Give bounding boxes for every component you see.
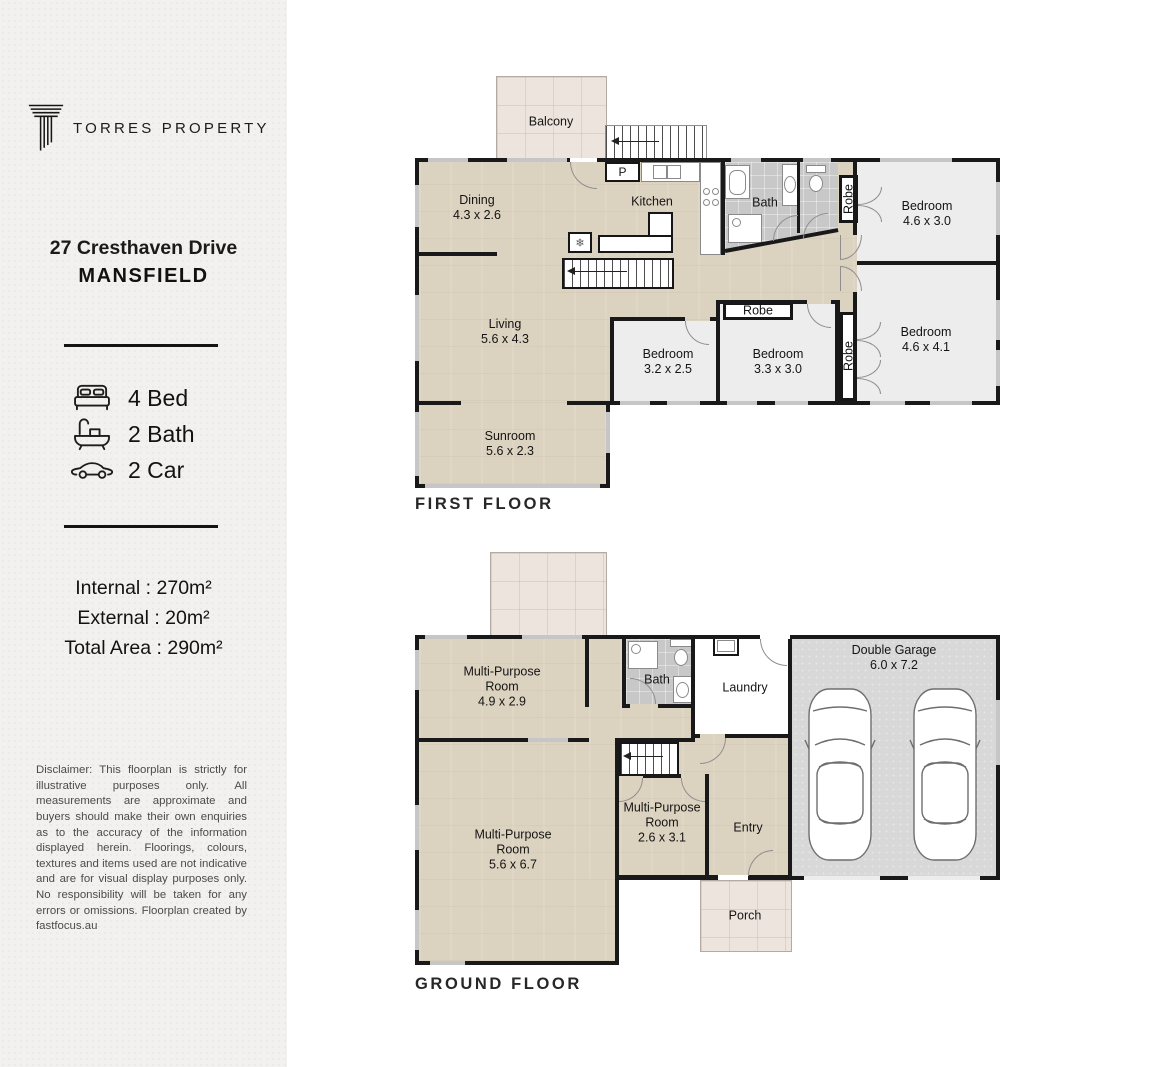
room-name: Kitchen (631, 195, 673, 210)
wall (568, 738, 589, 742)
room-name: Dining (453, 193, 501, 208)
window (430, 961, 465, 965)
wall (622, 639, 626, 708)
staircase (605, 125, 707, 160)
room-name: Bedroom (902, 199, 953, 214)
kitchen-sink (653, 165, 667, 179)
stairs-direction-line (619, 141, 659, 143)
room-name: Double Garage (852, 643, 937, 658)
wall (585, 639, 589, 707)
torres-logo-icon (28, 103, 64, 153)
room-label-multipurpose1: Multi-Purpose Room 4.9 x 2.9 (449, 665, 555, 710)
window (803, 158, 831, 162)
wall (643, 774, 681, 778)
bath-icon (70, 417, 114, 451)
room-dims: 3.2 x 2.5 (643, 362, 694, 377)
room-label-porch: Porch (729, 909, 762, 924)
window (996, 700, 1000, 765)
basin (676, 682, 689, 698)
window (428, 158, 468, 162)
room-name: Sunroom (485, 429, 536, 444)
wall (658, 704, 695, 708)
room-label-bath: Bath (644, 673, 670, 688)
wall (691, 639, 695, 738)
room-dims: 5.6 x 6.7 (460, 858, 566, 873)
car-top-view (909, 683, 981, 866)
room-name: Bedroom (901, 325, 952, 340)
window (415, 650, 419, 690)
room-dims: 5.6 x 4.3 (481, 332, 529, 347)
wall (725, 734, 792, 738)
room-name: Bath (752, 196, 778, 211)
island-bench (648, 212, 673, 237)
window (415, 805, 419, 850)
window (415, 185, 419, 227)
room-label-laundry: Laundry (722, 681, 767, 696)
room-label-bath: Bath (752, 196, 778, 211)
garage-door-opening (804, 876, 880, 880)
room-name: Laundry (722, 681, 767, 696)
car-top-view (804, 683, 876, 866)
bath-count: 2 Bath (128, 421, 195, 448)
window (996, 182, 1000, 235)
bathtub-inner (729, 170, 746, 195)
window (731, 158, 761, 162)
room-label-robe: Robe (743, 304, 773, 319)
window (522, 635, 582, 639)
room-name: Robe (743, 304, 773, 319)
shower-head (631, 644, 641, 654)
car-icon (70, 458, 114, 482)
island-bench (598, 235, 673, 253)
room-dims: 2.6 x 3.1 (609, 831, 715, 846)
stairs-direction-arrow (567, 267, 575, 275)
room-label-bedroom1: Bedroom 4.6 x 3.0 (902, 199, 953, 229)
room-dims: 4.3 x 2.6 (453, 208, 501, 223)
window (775, 401, 808, 405)
room-label-living: Living 5.6 x 4.3 (481, 317, 529, 347)
room-label-garage: Double Garage 6.0 x 7.2 (852, 643, 937, 673)
divider (64, 525, 218, 528)
window (667, 401, 700, 405)
divider (64, 344, 218, 347)
brand-logo: TORRES PROPERTY (28, 103, 270, 153)
window (415, 412, 419, 476)
room-label-robe: Robe (841, 184, 856, 214)
window (425, 484, 600, 488)
room-label-kitchen: Kitchen (631, 195, 673, 210)
bed-icon (70, 382, 114, 414)
wall (615, 875, 718, 880)
toilet-tank (806, 165, 826, 173)
stairs-direction-line (631, 756, 663, 758)
window (996, 300, 1000, 340)
window (930, 401, 972, 405)
window (528, 738, 568, 742)
floorplan-page: TORRES PROPERTY 27 Cresthaven Drive MANS… (0, 0, 1151, 1067)
external-area: External : 20m² (0, 607, 287, 630)
room-name: Living (481, 317, 529, 332)
wall (567, 401, 610, 405)
window (727, 401, 757, 405)
kitchen-sink (667, 165, 681, 179)
wall (721, 162, 725, 255)
fridge-icon: ❄ (575, 237, 584, 250)
room-dims: 6.0 x 7.2 (852, 658, 937, 673)
room-dims: 4.6 x 3.0 (902, 214, 953, 229)
stairs-direction-line (575, 271, 627, 273)
basin (784, 176, 796, 193)
wall (415, 635, 1000, 639)
toilet-tank (670, 639, 692, 647)
room-label-multipurpose3: Multi-Purpose Room 2.6 x 3.1 (609, 801, 715, 846)
room-label-bedroom2: Bedroom 4.6 x 4.1 (901, 325, 952, 355)
laundry-tub-inner (717, 640, 735, 652)
stove-burner (703, 199, 710, 206)
stairs-direction-arrow (623, 752, 631, 760)
room-name: Entry (733, 821, 762, 836)
first-floor-plan: P ❄ (415, 75, 1000, 490)
window (880, 158, 952, 162)
room-dims: 4.9 x 2.9 (449, 695, 555, 710)
window (415, 910, 419, 950)
room-dims: 3.3 x 3.0 (753, 362, 804, 377)
room-name: Multi-Purpose Room (449, 665, 555, 695)
wall (610, 317, 614, 401)
room-label-sunroom: Sunroom 5.6 x 2.3 (485, 429, 536, 459)
room-name: Multi-Purpose Room (609, 801, 715, 831)
wall (831, 300, 840, 304)
door-opening (718, 875, 748, 880)
wall (622, 704, 630, 708)
wall (610, 317, 685, 321)
wall (788, 635, 792, 880)
stairs-direction-arrow (611, 137, 619, 145)
first-floor-caption: FIRST FLOOR (415, 495, 554, 514)
brand-name: TORRES PROPERTY (73, 120, 270, 137)
window (507, 158, 567, 162)
room-label-dining: Dining 4.3 x 2.6 (453, 193, 501, 223)
address-line2: MANSFIELD (0, 265, 287, 288)
shower-head (732, 218, 741, 227)
room-label-bedroom3: Bedroom 3.3 x 3.0 (753, 347, 804, 377)
sidebar: TORRES PROPERTY 27 Cresthaven Drive MANS… (0, 0, 287, 1067)
total-area: Total Area : 290m² (0, 637, 287, 660)
garage-door-opening (908, 876, 980, 880)
room-label-multipurpose2: Multi-Purpose Room 5.6 x 6.7 (460, 828, 566, 873)
toilet-bowl (809, 175, 823, 192)
wall (857, 261, 1000, 265)
address-line1: 27 Cresthaven Drive (0, 237, 287, 260)
wall (615, 738, 695, 742)
room-name: Multi-Purpose Room (460, 828, 566, 858)
bed-count: 4 Bed (128, 385, 188, 412)
pantry: P (605, 162, 640, 182)
stat-bed: 4 Bed (70, 380, 188, 416)
toilet-bowl (674, 649, 688, 666)
wall (716, 300, 720, 401)
room-name: Balcony (529, 115, 573, 130)
room-dims: 4.6 x 4.1 (901, 340, 952, 355)
room-name: Bath (644, 673, 670, 688)
room-name: Robe (841, 341, 856, 371)
window (425, 635, 467, 639)
wall (415, 252, 497, 256)
room-name: Bedroom (753, 347, 804, 362)
stove-burner (703, 188, 710, 195)
stat-bath: 2 Bath (70, 416, 195, 452)
window (606, 412, 610, 453)
window (870, 401, 905, 405)
pantry-label: P (607, 164, 638, 180)
room-name: Porch (729, 909, 762, 924)
room-label-entry: Entry (733, 821, 762, 836)
ground-floor-plan: Multi-Purpose Room 4.9 x 2.9 Bath Laundr… (415, 550, 1000, 965)
disclaimer-text: Disclaimer: This floorplan is strictly f… (36, 763, 247, 935)
window (415, 295, 419, 361)
stat-car: 2 Car (70, 452, 184, 488)
room-dims: 5.6 x 2.3 (485, 444, 536, 459)
kitchen-counter (700, 162, 721, 255)
stove-burner (712, 188, 719, 195)
car-count: 2 Car (128, 457, 184, 484)
outdoor-tiled-area (490, 552, 607, 637)
room-label-bedroom4: Bedroom 3.2 x 2.5 (643, 347, 694, 377)
wall (415, 401, 461, 405)
window (620, 401, 650, 405)
window (996, 350, 1000, 386)
room-label-balcony: Balcony (529, 115, 573, 130)
room-name: Bedroom (643, 347, 694, 362)
room-name: Robe (841, 184, 856, 214)
wall (415, 738, 528, 742)
wall (835, 300, 840, 401)
staircase (562, 258, 674, 289)
stove-burner (712, 199, 719, 206)
internal-area: Internal : 270m² (0, 577, 287, 600)
ground-floor-caption: GROUND FLOOR (415, 975, 582, 994)
room-label-robe: Robe (841, 341, 856, 371)
